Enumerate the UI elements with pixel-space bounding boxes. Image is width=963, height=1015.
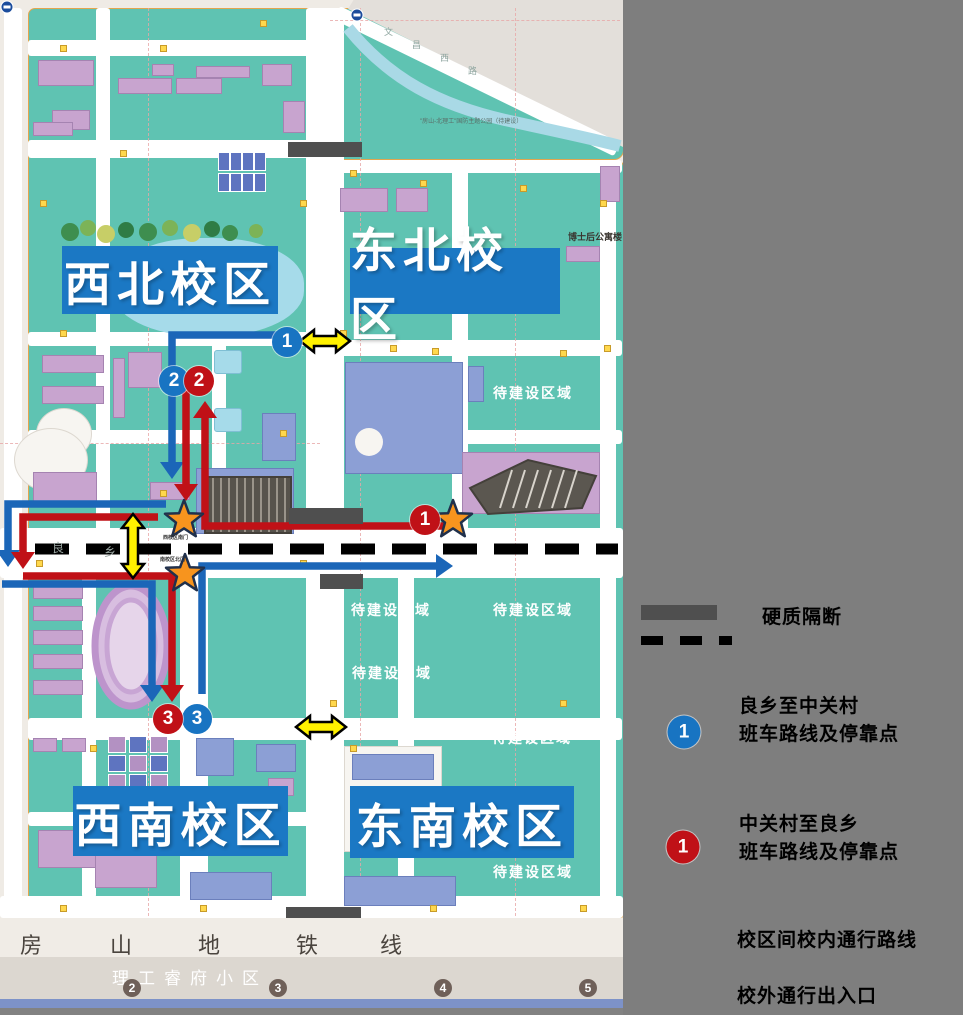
light-dot (350, 170, 357, 177)
subway-station-4: 4 (434, 979, 452, 997)
light-dot (280, 430, 287, 437)
sport-court (218, 152, 230, 171)
sport-court (129, 755, 147, 772)
building (33, 738, 57, 752)
hard-partition-bar (289, 508, 363, 524)
subway-line-name-char: 铁 (296, 928, 318, 960)
tree (61, 223, 79, 241)
tree (139, 223, 157, 241)
building (33, 122, 73, 136)
building (196, 738, 234, 776)
light-dot (560, 350, 567, 357)
road (600, 160, 616, 918)
building (33, 630, 83, 645)
pending-area-label: 待建设区域 (493, 862, 573, 882)
poi-label: 博士后公寓楼 (568, 230, 622, 243)
light-dot (120, 150, 127, 157)
sport-court (230, 152, 242, 171)
legend-transfer-label: 校区间校内通行路线 (737, 925, 917, 952)
light-dot (600, 200, 607, 207)
building (152, 64, 174, 76)
building (118, 78, 172, 94)
light-dot (200, 905, 207, 912)
campus-label-西南校区: 西南校区 (73, 786, 288, 856)
gate-label: 南校区北门 (160, 556, 185, 563)
building (352, 754, 434, 780)
hard-partition-bar (320, 574, 363, 589)
blue-stop-1: 1 (272, 327, 302, 357)
building (256, 744, 296, 772)
legend-panel: 硬质隔断 良乡至中关村 班车路线及停靠点 1 中关村至良乡 班车路线及停靠点 1… (623, 0, 963, 1015)
campus-label-东北校区: 东北校区 (350, 248, 560, 314)
road (28, 40, 318, 56)
pending-area-label: 待建设区域 (492, 728, 572, 748)
legend-blue-badge: 1 (668, 716, 701, 749)
building (33, 654, 83, 669)
light-dot (520, 185, 527, 192)
light-dot (350, 745, 357, 752)
legend-red-badge: 1 (667, 831, 700, 864)
tree (249, 224, 263, 238)
building (344, 876, 456, 906)
tree (80, 220, 96, 236)
light-dot (340, 330, 347, 337)
campus-label-西北校区: 西北校区 (62, 246, 278, 314)
subway-station-2: 2 (123, 979, 141, 997)
subway-line-name-char: 山 (110, 928, 132, 960)
building (42, 355, 104, 373)
pending-area-label: 待建设区域 (351, 600, 431, 620)
campus-label-东南校区: 东南校区 (350, 786, 574, 858)
sport-court (150, 755, 168, 772)
light-dot (160, 490, 167, 497)
building (600, 166, 620, 202)
legend-partition-label: 硬质隔断 (762, 602, 842, 629)
library-building (204, 476, 292, 534)
grid-line (330, 20, 620, 21)
subway-station-5: 5 (579, 979, 597, 997)
building (462, 452, 600, 514)
road-name-char: 乡 (104, 543, 116, 560)
building (128, 352, 162, 388)
sport-court (242, 152, 254, 171)
light-dot (160, 45, 167, 52)
building (396, 188, 428, 212)
road (28, 140, 318, 158)
road (322, 718, 622, 740)
light-dot (260, 20, 267, 27)
sport-court (218, 173, 230, 192)
light-dot (560, 700, 567, 707)
subway-band-lower (0, 957, 623, 999)
building (262, 64, 292, 86)
road-name-char: 西 (440, 51, 449, 64)
legend-partition-swatch (641, 605, 717, 620)
legend-blue-line2: 班车路线及停靠点 (739, 719, 899, 746)
building (262, 413, 296, 461)
road-name-char: 良 (52, 539, 64, 556)
sport-court (108, 736, 126, 753)
building (283, 101, 305, 133)
building (42, 386, 104, 404)
road (322, 160, 622, 173)
road-name-char: 昌 (412, 38, 421, 51)
light-dot (60, 45, 67, 52)
building (33, 606, 83, 621)
gate-label: 西校区南门 (163, 534, 188, 541)
sport-court (150, 736, 168, 753)
building (62, 738, 86, 752)
light-dot (430, 905, 437, 912)
legend-red-line1: 中关村至良乡 (739, 809, 859, 836)
hard-partition-bar (288, 142, 362, 157)
legend-blue-line1: 良乡至中关村 (739, 691, 859, 718)
light-dot (420, 180, 427, 187)
metro-icon (351, 9, 364, 22)
pending-area-label: 待建设区域 (352, 663, 432, 683)
tree (97, 225, 115, 243)
building (340, 188, 388, 212)
building (176, 78, 222, 94)
tree (222, 225, 238, 241)
subway-station-3: 3 (269, 979, 287, 997)
subway-bar (0, 999, 623, 1008)
light-dot (60, 905, 67, 912)
subway-line-name-char: 房 (20, 928, 42, 960)
light-dot (40, 200, 47, 207)
road-name-char: 路 (468, 64, 477, 77)
subway-line-name-char: 地 (198, 928, 220, 960)
building (214, 408, 242, 432)
building (190, 872, 272, 900)
blue-stop-3: 3 (182, 704, 212, 734)
building (196, 66, 250, 78)
road-name-char: 文 (384, 25, 393, 38)
red-stop-1: 1 (410, 505, 440, 535)
building (214, 350, 242, 374)
light-dot (36, 560, 43, 567)
pending-area-label: 待建设区域 (493, 600, 573, 620)
tree (204, 221, 220, 237)
sport-court (242, 173, 254, 192)
light-dot (300, 200, 307, 207)
building (566, 246, 600, 262)
building (33, 680, 83, 695)
sport-court (230, 173, 242, 192)
building (33, 472, 97, 506)
tree (162, 220, 178, 236)
building (113, 358, 125, 418)
building (38, 60, 94, 86)
metro-icon (1, 1, 14, 14)
subway-line-name-char: 线 (380, 928, 402, 960)
sport-court (254, 173, 266, 192)
sport-court (254, 152, 266, 171)
building (150, 482, 190, 500)
tree (183, 224, 201, 242)
light-dot (60, 330, 67, 337)
poi-label: "房山-北理工"国防主题公园（待建设） (420, 116, 522, 125)
building (345, 362, 463, 474)
red-stop-2: 2 (184, 366, 214, 396)
light-dot (580, 905, 587, 912)
light-dot (90, 745, 97, 752)
tree (118, 222, 134, 238)
building-courtyard (355, 428, 383, 456)
building (33, 584, 83, 599)
legend-gate-label: 校外通行出入口 (737, 981, 877, 1008)
light-dot (604, 345, 611, 352)
campus-shuttle-map: 文昌西路西北校区东北校区西南校区东南校区待建设区域待建设区域待建设区域待建设区域… (0, 0, 963, 1015)
sport-court (108, 755, 126, 772)
pending-area-label: 待建设区域 (493, 383, 573, 403)
legend-red-line2: 班车路线及停靠点 (739, 837, 899, 864)
light-dot (330, 700, 337, 707)
building (468, 366, 484, 402)
light-dot (300, 560, 307, 567)
red-stop-3: 3 (153, 704, 183, 734)
sport-court (129, 736, 147, 753)
building (95, 852, 157, 888)
